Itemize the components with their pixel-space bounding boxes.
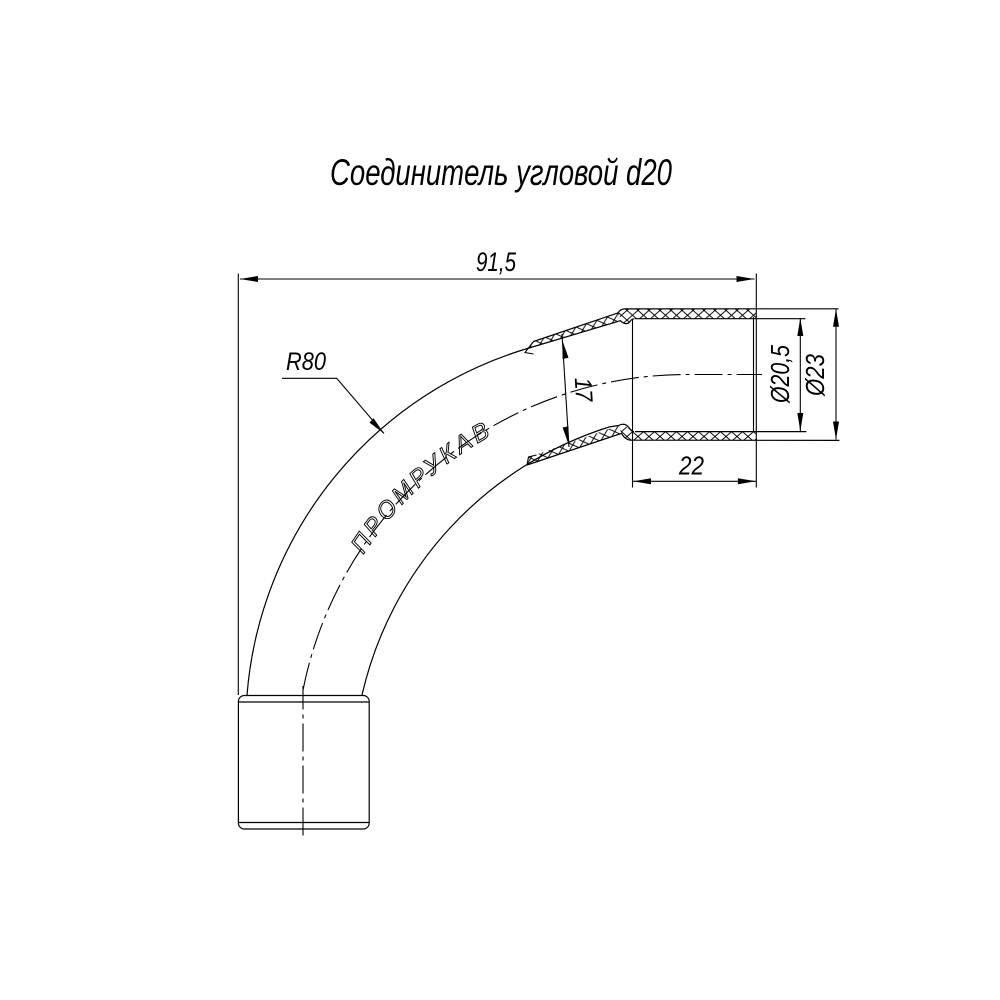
svg-text:Соединитель угловой d20: Соединитель угловой d20 (330, 152, 672, 193)
svg-text:Ø23: Ø23 (800, 354, 830, 397)
svg-text:R80: R80 (286, 348, 326, 376)
svg-text:17: 17 (569, 377, 597, 404)
svg-text:Ø20,5: Ø20,5 (765, 345, 795, 404)
svg-text:ПРОМРУКАВ: ПРОМРУКАВ (346, 416, 497, 559)
svg-text:91,5: 91,5 (476, 247, 517, 277)
svg-text:22: 22 (678, 451, 704, 481)
